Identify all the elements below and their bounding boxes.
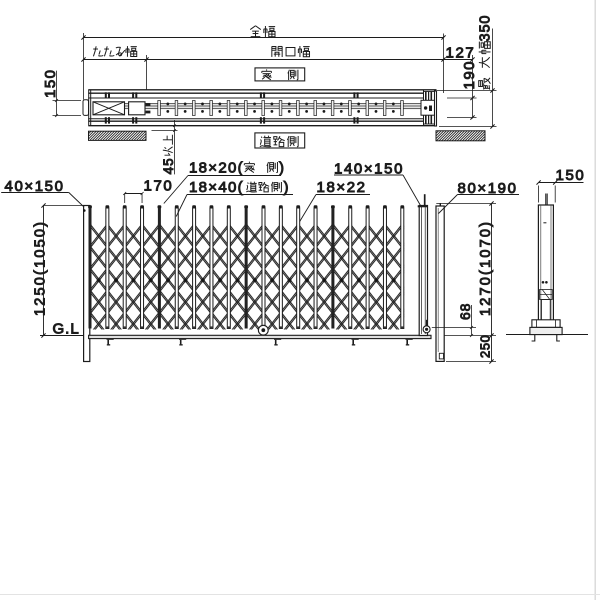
svg-text:150: 150 (556, 167, 586, 184)
svg-text:18×40(: 18×40( (189, 179, 244, 196)
svg-text:1270(1070): 1270(1070) (478, 220, 494, 316)
svg-text:127: 127 (446, 45, 476, 62)
svg-text:68: 68 (457, 303, 473, 320)
svg-text:150: 150 (42, 68, 59, 98)
svg-text:1250(1050): 1250(1050) (33, 220, 49, 316)
svg-text:350: 350 (478, 15, 494, 42)
svg-text:170: 170 (144, 178, 174, 195)
svg-text:250: 250 (478, 335, 493, 359)
svg-text:18×20(: 18×20( (189, 160, 244, 177)
svg-text:): ) (284, 179, 289, 196)
svg-text:18×22: 18×22 (317, 179, 367, 196)
svg-text:190: 190 (461, 60, 478, 90)
svg-text:45: 45 (161, 157, 176, 174)
svg-text:): ) (279, 160, 284, 177)
